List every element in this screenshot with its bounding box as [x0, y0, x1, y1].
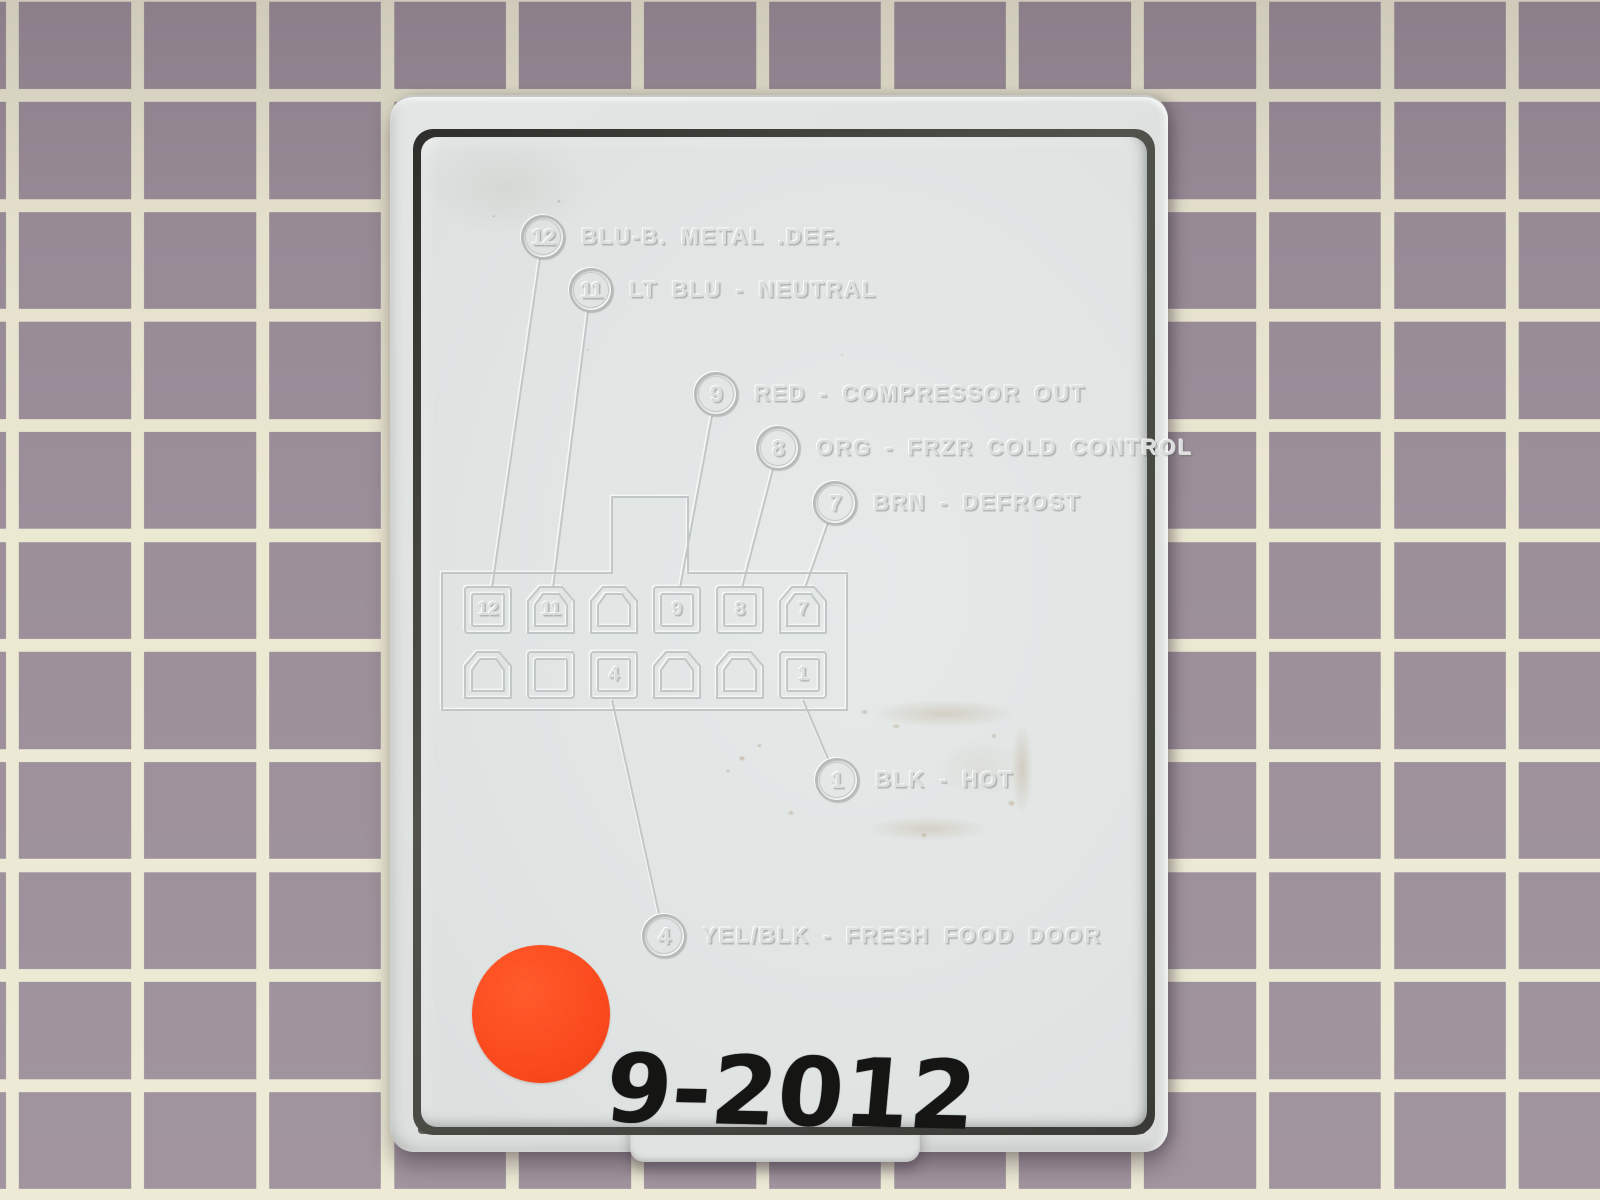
connector-pin-cell [717, 652, 763, 698]
callout-pin-12: 12 BLU-B. METAL .DEF. [521, 215, 841, 259]
connector-pin-cell [654, 652, 700, 698]
connector-pin-cell [528, 652, 574, 698]
callout-pin-8: 8 ORG - FRZR COLD CONTROL [756, 426, 1194, 470]
handwritten-date: 9-2012 [602, 1042, 980, 1145]
pin-12-circle: 12 [521, 215, 565, 259]
pin-8-number: 8 [772, 435, 784, 462]
pin-12-number: 12 [531, 224, 555, 251]
connector-pin-cell: 1 [780, 652, 826, 698]
callout-pin-4: 4 YEL/BLK - FRESH FOOD DOOR [642, 914, 1102, 958]
pin-1-number: 1 [831, 767, 843, 794]
pin-7-number: 7 [829, 490, 841, 517]
connector-pin-cell: 9 [654, 587, 700, 633]
connector-pin-cell [591, 587, 637, 633]
pin-11-number: 11 [580, 277, 602, 304]
pin-12-label: BLU-B. METAL .DEF. [581, 224, 841, 250]
callout-pin-1: 1 BLK - HOT [815, 758, 1014, 802]
pin-9-number: 9 [710, 381, 722, 408]
pin-4-circle: 4 [642, 914, 686, 958]
pin-8-label: ORG - FRZR COLD CONTROL [816, 435, 1194, 461]
callout-pin-7: 7 BRN - DEFROST [813, 481, 1081, 525]
connector-pin-cell [465, 652, 511, 698]
pin-9-circle: 9 [694, 372, 738, 416]
pin-11-label: LT BLU - NEUTRAL [629, 277, 877, 303]
pin-7-circle: 7 [813, 481, 857, 525]
pin-9-label: RED - COMPRESSOR OUT [754, 381, 1086, 407]
connector-pin-cell: 7 [780, 587, 826, 633]
connector-pin-cell: 11 [528, 587, 574, 633]
pin-11-circle: 11 [569, 268, 613, 312]
connector-pin-cell: 8 [717, 587, 763, 633]
pin-4-number: 4 [658, 923, 670, 950]
connector-pin-cell: 12 [465, 587, 511, 633]
pin-1-label: BLK - HOT [875, 767, 1014, 793]
pin-4-label: YEL/BLK - FRESH FOOD DOOR [702, 923, 1102, 949]
pin-8-circle: 8 [756, 426, 800, 470]
pin-7-label: BRN - DEFROST [873, 490, 1081, 516]
connector-pin-cell: 4 [591, 652, 637, 698]
photo-of-control-box-on-cutting-mat: 12 BLU-B. METAL .DEF. 11 LT BLU - NEUTRA… [0, 0, 1600, 1200]
orange-dot-sticker [472, 945, 610, 1083]
pin-1-circle: 1 [815, 758, 859, 802]
callout-pin-9: 9 RED - COMPRESSOR OUT [694, 372, 1086, 416]
callout-pin-11: 11 LT BLU - NEUTRAL [569, 268, 877, 312]
